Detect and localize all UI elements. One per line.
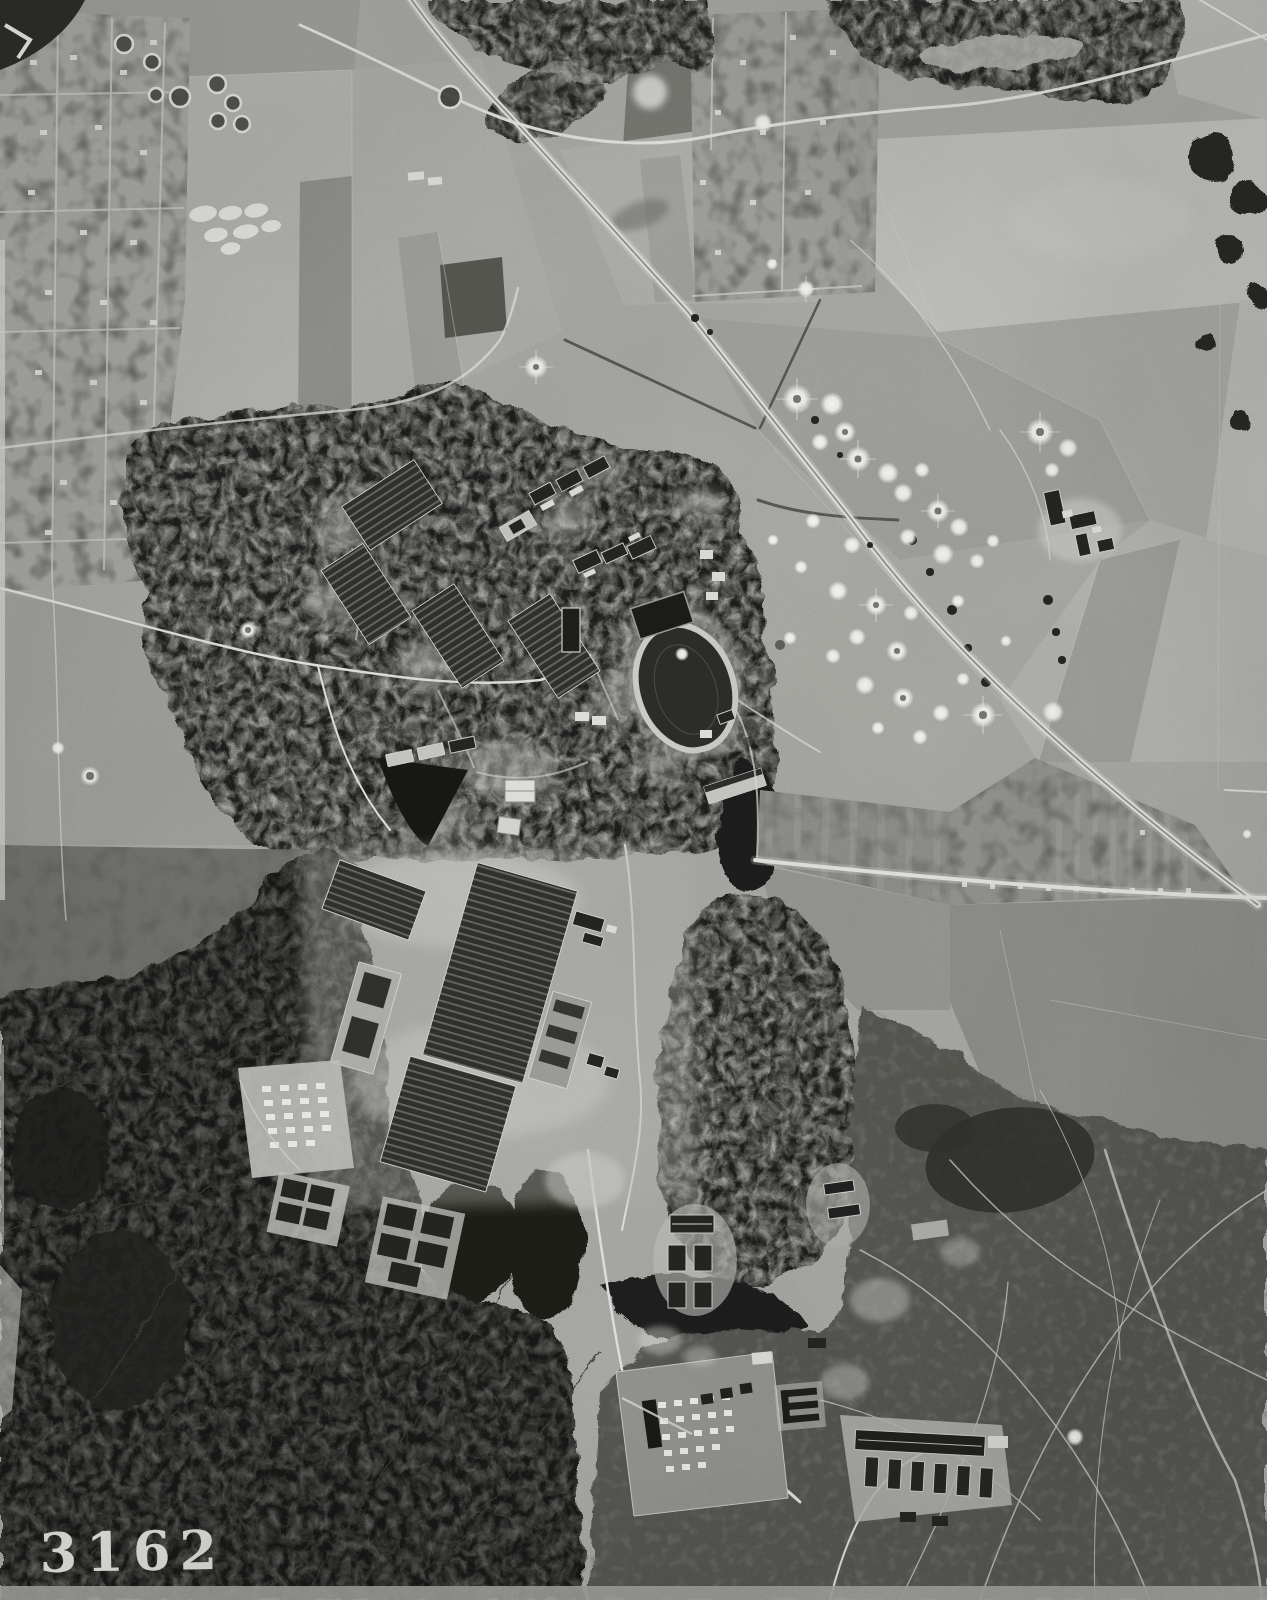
aerial-photo-canvas: 3162 [0, 0, 1267, 1600]
aerial-photo: 3162 [0, 0, 1267, 1600]
film-grain-overlay [0, 0, 1267, 1600]
